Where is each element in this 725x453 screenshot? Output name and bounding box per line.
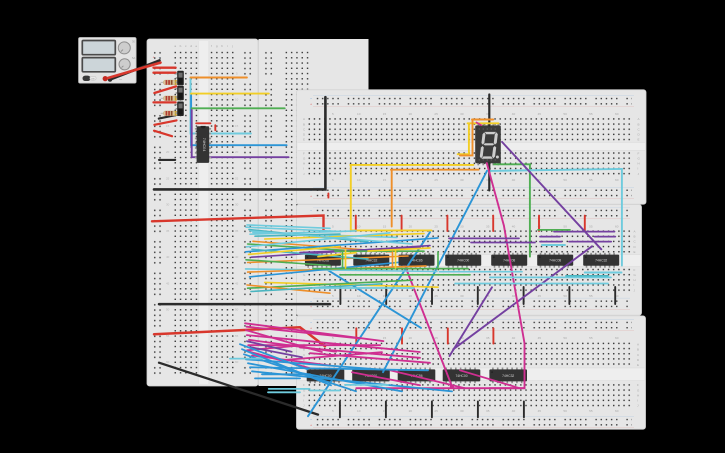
svg-text:E: E — [637, 363, 639, 367]
svg-text:h: h — [221, 44, 223, 48]
svg-text:25: 25 — [434, 224, 438, 228]
svg-text:5: 5 — [332, 336, 334, 340]
svg-text:15: 15 — [383, 224, 387, 228]
svg-text:45: 45 — [538, 294, 542, 298]
svg-text:35: 35 — [166, 229, 170, 233]
svg-text:50: 50 — [563, 409, 567, 413]
svg-text:30: 30 — [460, 178, 464, 182]
svg-text:5: 5 — [332, 294, 334, 298]
svg-text:20: 20 — [235, 150, 239, 154]
svg-text:15: 15 — [383, 112, 387, 116]
svg-text:H: H — [303, 393, 305, 397]
svg-text:20: 20 — [409, 294, 413, 298]
svg-text:F: F — [303, 383, 305, 387]
svg-text:55: 55 — [589, 409, 593, 413]
svg-text:55: 55 — [589, 224, 593, 228]
svg-text:H: H — [637, 393, 639, 397]
svg-text:10: 10 — [235, 98, 239, 102]
svg-text:b: b — [180, 44, 182, 48]
svg-text:5: 5 — [332, 112, 334, 116]
svg-text:50: 50 — [563, 224, 567, 228]
svg-text:−: − — [310, 418, 312, 422]
svg-text:74HC32: 74HC32 — [595, 259, 607, 263]
svg-text:f: f — [211, 44, 212, 48]
svg-text:25: 25 — [434, 178, 438, 182]
svg-text:E: E — [634, 250, 636, 254]
svg-text:d: d — [190, 44, 192, 48]
svg-text:−: − — [310, 97, 312, 101]
svg-text:30: 30 — [166, 203, 170, 207]
svg-text:40: 40 — [166, 255, 170, 259]
svg-text:60: 60 — [615, 178, 619, 182]
svg-text:40: 40 — [512, 178, 516, 182]
svg-text:B: B — [303, 122, 305, 126]
svg-text:40: 40 — [512, 112, 516, 116]
svg-text:40: 40 — [235, 255, 239, 259]
svg-text:E: E — [303, 138, 305, 142]
svg-text:60: 60 — [615, 409, 619, 413]
svg-text:20: 20 — [409, 178, 413, 182]
svg-text:F: F — [634, 268, 636, 272]
svg-text:74HC00: 74HC00 — [455, 374, 467, 378]
svg-text:+: + — [310, 103, 312, 107]
svg-text:55: 55 — [589, 294, 593, 298]
svg-text:10: 10 — [357, 224, 361, 228]
svg-text:5: 5 — [332, 409, 334, 413]
svg-text:30: 30 — [235, 203, 239, 207]
svg-text:45: 45 — [538, 336, 542, 340]
svg-text:55: 55 — [235, 334, 239, 338]
svg-text:60: 60 — [615, 112, 619, 116]
svg-text:a: a — [174, 44, 176, 48]
svg-text:50: 50 — [563, 112, 567, 116]
svg-text:5: 5 — [332, 224, 334, 228]
svg-text:25: 25 — [434, 112, 438, 116]
svg-text:50: 50 — [563, 178, 567, 182]
svg-text:−: − — [158, 56, 160, 60]
svg-text:50: 50 — [166, 308, 170, 312]
svg-text:45: 45 — [538, 409, 542, 413]
svg-text:30: 30 — [460, 112, 464, 116]
svg-text:+: + — [310, 424, 312, 428]
svg-text:25: 25 — [235, 177, 239, 181]
svg-text:B: B — [637, 348, 639, 352]
svg-text:+: + — [310, 305, 312, 309]
svg-text:25: 25 — [166, 177, 170, 181]
svg-text:35: 35 — [235, 229, 239, 233]
svg-text:40: 40 — [512, 224, 516, 228]
svg-text:▪▪▪: ▪▪▪ — [119, 77, 122, 81]
svg-text:H: H — [638, 162, 640, 166]
svg-text:45: 45 — [166, 282, 170, 286]
svg-text:40: 40 — [512, 336, 516, 340]
svg-text:10: 10 — [357, 294, 361, 298]
svg-text:e: e — [196, 44, 198, 48]
svg-text:H: H — [303, 162, 305, 166]
svg-text:10: 10 — [357, 112, 361, 116]
svg-text:20: 20 — [409, 336, 413, 340]
svg-text:15: 15 — [235, 124, 239, 128]
svg-text:F: F — [638, 151, 640, 155]
svg-text:35: 35 — [486, 409, 490, 413]
svg-text:45: 45 — [235, 282, 239, 286]
svg-text:50: 50 — [563, 336, 567, 340]
svg-text:20: 20 — [409, 409, 413, 413]
svg-text:20: 20 — [166, 150, 170, 154]
svg-text:A: A — [303, 117, 305, 121]
svg-text:25: 25 — [434, 336, 438, 340]
svg-text:74HC00: 74HC00 — [457, 259, 469, 263]
svg-text:g: g — [216, 44, 218, 48]
svg-text:ON: ON — [91, 79, 95, 81]
svg-text:50: 50 — [563, 294, 567, 298]
svg-text:F: F — [637, 383, 639, 387]
svg-text:45: 45 — [538, 112, 542, 116]
svg-text:B: B — [634, 235, 636, 239]
svg-text:55: 55 — [589, 336, 593, 340]
svg-text:50: 50 — [235, 308, 239, 312]
svg-text:10: 10 — [357, 178, 361, 182]
svg-text:30: 30 — [460, 409, 464, 413]
svg-text:35: 35 — [486, 224, 490, 228]
svg-text:40: 40 — [512, 294, 516, 298]
svg-text:+: + — [153, 56, 155, 60]
svg-text:25: 25 — [434, 409, 438, 413]
svg-text:60: 60 — [615, 336, 619, 340]
svg-text:40: 40 — [512, 409, 516, 413]
svg-text:20: 20 — [409, 224, 413, 228]
svg-text:5A: 5A — [132, 56, 135, 60]
svg-text:+: + — [310, 194, 312, 198]
svg-text:74HC04: 74HC04 — [202, 138, 206, 152]
svg-text:B: B — [638, 122, 640, 126]
svg-text:+: + — [310, 327, 312, 331]
svg-text:74HC32: 74HC32 — [502, 374, 514, 378]
svg-text:15: 15 — [383, 336, 387, 340]
svg-text:35: 35 — [486, 336, 490, 340]
svg-text:15: 15 — [166, 124, 170, 128]
svg-text:A: A — [638, 117, 640, 121]
svg-text:20: 20 — [409, 112, 413, 116]
svg-text:F: F — [303, 151, 305, 155]
svg-text:55: 55 — [589, 112, 593, 116]
svg-text:10: 10 — [357, 409, 361, 413]
svg-text:55: 55 — [589, 178, 593, 182]
svg-text:60: 60 — [615, 224, 619, 228]
svg-text:A: A — [634, 229, 636, 233]
svg-text:H: H — [303, 278, 305, 282]
svg-text:74HC08: 74HC08 — [549, 259, 561, 263]
svg-text:H: H — [634, 278, 636, 282]
svg-text:E: E — [638, 138, 640, 142]
svg-text:−: − — [310, 321, 312, 325]
svg-text:30: 30 — [460, 294, 464, 298]
svg-text:60: 60 — [166, 360, 170, 364]
svg-text:60: 60 — [235, 360, 239, 364]
svg-text:5: 5 — [332, 178, 334, 182]
svg-text:25: 25 — [434, 294, 438, 298]
svg-text:A: A — [637, 343, 639, 347]
svg-text:15: 15 — [383, 178, 387, 182]
svg-text:−: − — [310, 209, 312, 213]
svg-text:30: 30 — [460, 224, 464, 228]
